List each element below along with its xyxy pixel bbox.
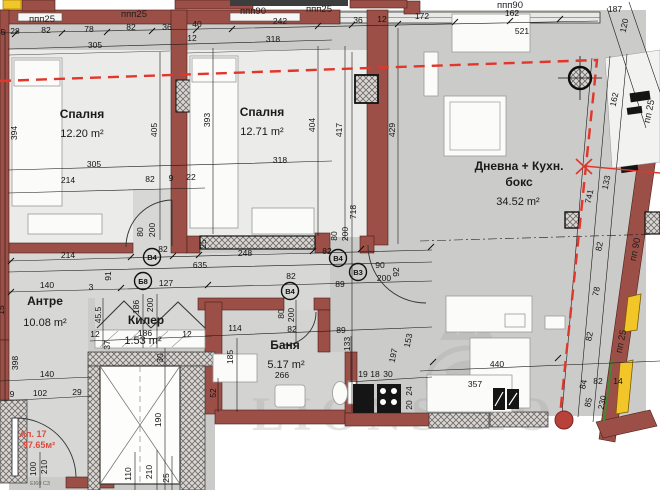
dimension-label: 52 (208, 388, 218, 398)
dimension-label: 214 (61, 250, 75, 260)
dimension-label: 30 (383, 369, 393, 379)
dimension-label: 36 (353, 15, 363, 25)
door-marker-label: B3 (353, 268, 363, 277)
dimension-label: 37 (102, 340, 112, 350)
dimension-label: 9 (10, 389, 15, 399)
bed2-pillow (192, 58, 236, 82)
dimension-label: 133 (342, 337, 352, 351)
dimension-label: 82 (286, 271, 296, 281)
door-marker-label: B4 (333, 254, 343, 263)
neighbor-wall-3 (350, 0, 407, 8)
dimension-label: 429 (387, 123, 397, 137)
dimension-label: 185 (225, 350, 235, 364)
dimension-label: 242 (273, 16, 287, 26)
dimension-label: 22 (186, 172, 196, 182)
room-label: 12.71 m² (240, 126, 284, 138)
wall-type-label: ппп25 (121, 9, 147, 20)
dimension-label: 45.5 (93, 306, 103, 323)
toilet-icon (333, 382, 348, 405)
sink-icon (275, 385, 305, 407)
dimension-label: 248 (238, 248, 252, 258)
neighbor-window (3, 0, 21, 9)
room-label: 12.20 m² (60, 128, 104, 140)
dimension-label: 3 (89, 282, 94, 292)
dimension-label: 12 (187, 33, 197, 43)
room-label: 34.52 m² (496, 196, 540, 208)
door-marker-label: B4 (147, 253, 157, 262)
chair-icon-2 (545, 316, 565, 329)
entrance-wall-block-1 (66, 477, 88, 488)
dimension-label: 90 (375, 260, 385, 270)
dimension-label: EI60 C3 (30, 481, 50, 487)
kitchen-niche-wall (360, 236, 374, 253)
dimension-label: 82 (158, 244, 168, 254)
column-pier-2 (355, 75, 378, 103)
dimension-label: 12 (377, 14, 387, 24)
dimension-label: 80 (329, 231, 339, 241)
dimension-label: 305 (87, 159, 101, 169)
wall-type-label: ппп90 (240, 6, 266, 17)
dimension-label: 82 (593, 376, 603, 386)
dimension-label: 405 (149, 123, 159, 137)
dimension-label: 12 (182, 329, 192, 339)
dimension-label: 80 (135, 227, 145, 237)
bottom-hatched-wall-1 (429, 413, 489, 428)
living-shelf (424, 52, 438, 96)
dimension-label: 214 (61, 175, 75, 185)
dimension-label: 28 (10, 26, 20, 36)
dimension-label: 162 (505, 8, 519, 18)
dimension-label: 172 (415, 11, 429, 21)
apartment-label: Ап. 17 (20, 429, 47, 439)
dimension-label: 718 (348, 205, 358, 219)
dimension-label: 635 (193, 260, 207, 270)
door-marker-label: Б8 (138, 277, 148, 286)
dimension-label: 19 (358, 369, 368, 379)
dimension-label: 140 (40, 369, 54, 379)
red-column (555, 411, 573, 429)
dimension-label: 12 (90, 329, 100, 339)
dimension-label: 318 (266, 34, 280, 44)
dimension-label: 29 (72, 387, 82, 397)
room-label: Баня (270, 338, 300, 352)
dimension-label: 357 (468, 379, 482, 389)
room-label: бокс (505, 175, 533, 189)
dimension-label: 82 (126, 22, 136, 32)
shaft-wall-top (88, 352, 215, 366)
bed1-pillow (14, 60, 60, 86)
dimension-label: 200 (147, 223, 157, 237)
dimension-label: 187 (608, 4, 622, 14)
dimension-label: 102 (33, 388, 47, 398)
dimension-label: 80 (276, 309, 286, 319)
dimension-label: 398 (10, 356, 20, 370)
dimension-label: 9 (169, 173, 174, 183)
dimension-label: 200 (286, 308, 296, 322)
dimension-label: 521 (515, 26, 529, 36)
bedroom2-living-wall (367, 10, 388, 245)
dimension-label: 92 (391, 267, 401, 277)
dimension-label: 393 (202, 113, 212, 127)
room-label: 10.08 m² (23, 317, 67, 329)
room-label: Антре (27, 294, 63, 308)
neighbor-wall-1 (22, 0, 55, 11)
chair-icon-1 (505, 314, 525, 327)
dimension-label: 15 (0, 305, 6, 315)
dimension-label: 200 (377, 273, 391, 283)
bath-bottom-wall (215, 410, 345, 424)
bedroom-divider-wall (171, 10, 187, 253)
dimension-label: 89 (335, 279, 345, 289)
dimension-label: 82 (145, 174, 155, 184)
dimension-label: 210 (39, 460, 49, 474)
living-column (565, 212, 579, 228)
left-wall-lower (0, 340, 9, 400)
dimension-label: 5 (1, 27, 6, 37)
kitchen-sink-unit (353, 384, 374, 413)
dimension-label: 91 (103, 271, 113, 281)
dimension-label: 417 (334, 123, 344, 137)
dimension-label: 30 (155, 353, 165, 363)
dimension-label: 190 (153, 413, 163, 427)
dimension-label: 82 (287, 324, 297, 334)
dimension-label: 24 (404, 386, 414, 396)
floor-plan-screenshot: LIONS HO (0, 0, 660, 490)
dimension-label: 89 (336, 325, 346, 335)
bottom-hatched-wall-2 (490, 412, 548, 427)
dimension-label: 127 (159, 278, 173, 288)
dimension-label: 78 (84, 24, 94, 34)
dimension-label: 140 (40, 280, 54, 290)
bed2-dresser (252, 208, 314, 234)
apartment-label: 97.65м² (23, 440, 55, 450)
bath-top-wall-right (314, 298, 330, 310)
dimension-label: 110 (123, 467, 133, 481)
dimension-label: 210 (144, 465, 154, 479)
dimension-label: 200 (145, 298, 155, 312)
dimension-label: 36 (162, 22, 172, 32)
dimension-label: 25 (161, 473, 171, 483)
wall-type-label: ппп25 (29, 14, 55, 25)
demountable-wall (200, 236, 315, 249)
wall-type-label: ппп25 (306, 4, 332, 15)
dimension-label: 200 (340, 227, 350, 241)
dimension-label: 318 (273, 155, 287, 165)
right-edge-pier (645, 212, 660, 234)
dimension-label: 186 (131, 300, 141, 314)
dimension-label: 394 (9, 126, 19, 140)
sofa-icon (444, 96, 506, 156)
dimension-label: 82 (41, 25, 51, 35)
stove-icon (377, 384, 401, 413)
dimension-label: 40 (192, 19, 202, 29)
entrance-door-leaf (12, 418, 18, 476)
room-label: Спалня (240, 105, 284, 119)
bed1-dresser (28, 214, 102, 234)
dimension-label: 20 (404, 400, 414, 410)
dimension-label: 82 (322, 246, 332, 256)
kitchen-bottom-wall (345, 413, 429, 426)
dimension-label: 18 (370, 369, 380, 379)
shaft-wall-right (180, 366, 205, 490)
dimension-label: 266 (275, 370, 289, 380)
dimension-label: 305 (88, 40, 102, 50)
room-label: Дневна + Кухн. (475, 159, 564, 173)
dimension-label: 404 (307, 118, 317, 132)
floor-plan-drawing: LIONS HO (0, 0, 660, 490)
room-label: 5.17 m² (267, 359, 305, 371)
dimension-label: 14 (613, 376, 623, 386)
shaft-wall-left (88, 366, 100, 490)
left-exterior-wall (0, 10, 9, 340)
room-label: 1.53 m² (124, 335, 162, 347)
dimension-label: 100 (28, 462, 38, 476)
washer-icon (213, 354, 257, 382)
door-marker-label: B4 (285, 287, 295, 296)
dimension-label: 25 (198, 239, 208, 249)
room-label: Спалня (60, 107, 104, 121)
dimension-label: 440 (490, 359, 504, 369)
dimension-label: 114 (228, 323, 242, 333)
room-label: Килер (128, 313, 164, 327)
